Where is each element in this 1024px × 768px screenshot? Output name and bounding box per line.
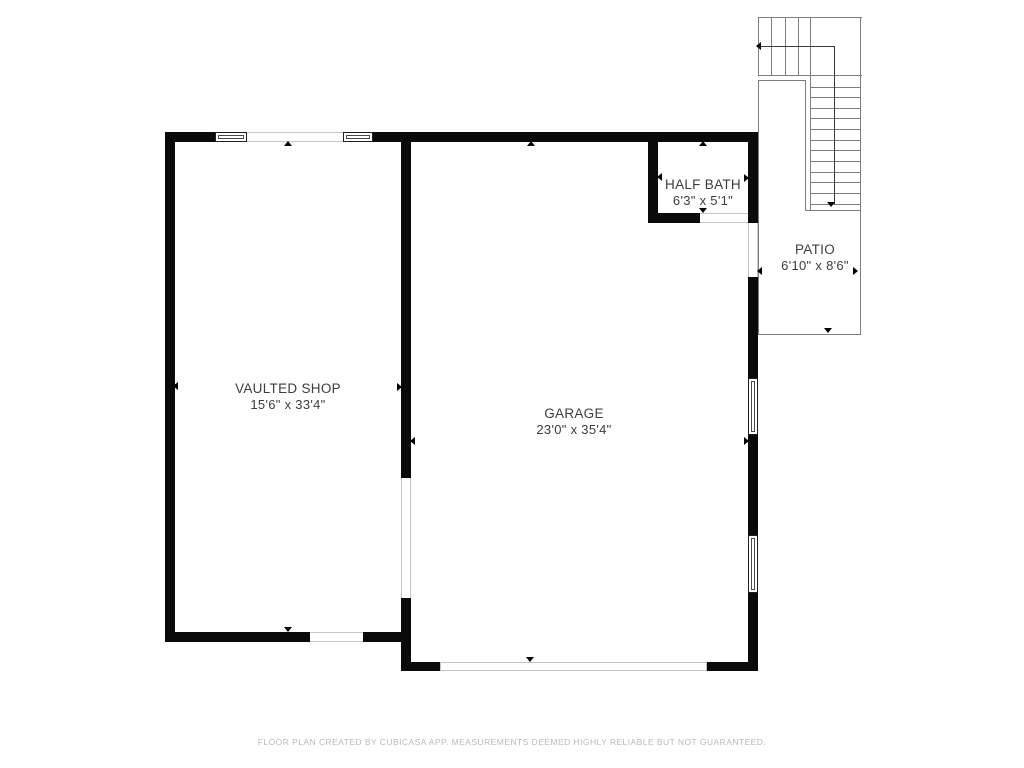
direction-marker-left: [756, 42, 761, 50]
wall: [363, 632, 411, 642]
window-pane: [218, 135, 244, 139]
wall: [411, 662, 440, 671]
direction-marker-left: [657, 173, 662, 181]
room-dimensions-patio: 6'10" x 8'6": [781, 258, 849, 274]
direction-marker-up: [284, 141, 292, 146]
window-pane: [346, 135, 370, 139]
footer-disclaimer: FLOOR PLAN CREATED BY CUBICASA APP. MEAS…: [258, 737, 766, 747]
stair-walk-line: [759, 46, 835, 47]
stair-patio-line: [805, 210, 861, 211]
stair-patio-line: [811, 129, 860, 130]
direction-marker-up: [699, 141, 707, 146]
direction-marker-right: [744, 174, 749, 182]
stair-patio-line: [758, 80, 759, 335]
wall-opening: [401, 478, 411, 598]
stair-patio-line: [811, 204, 860, 205]
stair-patio-line: [811, 87, 860, 88]
direction-marker-right: [744, 437, 749, 445]
wall: [648, 213, 700, 223]
wall-opening: [310, 632, 363, 642]
direction-marker-right: [397, 383, 402, 391]
window-pane: [751, 538, 755, 590]
wall-opening: [247, 132, 343, 142]
direction-marker-down: [526, 657, 534, 662]
window: [748, 535, 758, 593]
stair-patio-line: [811, 118, 860, 119]
stair-patio-line: [811, 97, 860, 98]
stair-patio-line: [758, 80, 806, 81]
direction-marker-down: [824, 328, 832, 333]
window-pane: [751, 381, 755, 432]
wall: [165, 632, 310, 642]
direction-marker-down: [284, 627, 292, 632]
room-dimensions-garage: 23'0" x 35'4": [536, 422, 611, 438]
window: [215, 132, 247, 142]
stair-patio-line: [811, 161, 860, 162]
room-name-garage: GARAGE: [536, 406, 611, 422]
stair-walk-line: [834, 46, 835, 204]
room-dimensions-half-bath: 6'3" x 5'1": [665, 193, 741, 209]
wall: [748, 593, 758, 671]
window: [748, 378, 758, 435]
room-name-half-bath: HALF BATH: [665, 177, 741, 193]
room-label-garage: GARAGE23'0" x 35'4": [536, 406, 611, 438]
wall: [748, 435, 758, 535]
wall-opening: [440, 662, 707, 671]
room-name-patio: PATIO: [781, 242, 849, 258]
window: [343, 132, 373, 142]
stair-patio-line: [811, 150, 860, 151]
wall: [401, 132, 411, 478]
direction-marker-right: [853, 267, 858, 275]
stair-patio-line: [811, 172, 860, 173]
direction-marker-down: [827, 202, 835, 207]
stair-patio-line: [811, 193, 860, 194]
stair-patio-line: [811, 108, 860, 109]
stair-patio-line: [811, 182, 860, 183]
room-label-half-bath: HALF BATH6'3" x 5'1": [665, 177, 741, 209]
room-dimensions-vaulted-shop: 15'6" x 33'4": [235, 397, 341, 413]
wall: [748, 132, 758, 223]
floor-plan-canvas: FLOOR PLAN CREATED BY CUBICASA APP. MEAS…: [0, 0, 1024, 768]
wall: [648, 142, 658, 223]
stair-patio-line: [811, 140, 860, 141]
direction-marker-left: [173, 382, 178, 390]
stair-patio-line: [758, 334, 861, 335]
room-label-patio: PATIO6'10" x 8'6": [781, 242, 849, 274]
wall: [748, 277, 758, 378]
stair-patio-line: [860, 17, 861, 335]
direction-marker-left: [410, 437, 415, 445]
room-label-vaulted-shop: VAULTED SHOP15'6" x 33'4": [235, 381, 341, 413]
direction-marker-up: [527, 141, 535, 146]
direction-marker-left: [757, 267, 762, 275]
wall-opening: [700, 213, 748, 223]
stair-patio-line: [805, 80, 806, 211]
room-name-vaulted-shop: VAULTED SHOP: [235, 381, 341, 397]
